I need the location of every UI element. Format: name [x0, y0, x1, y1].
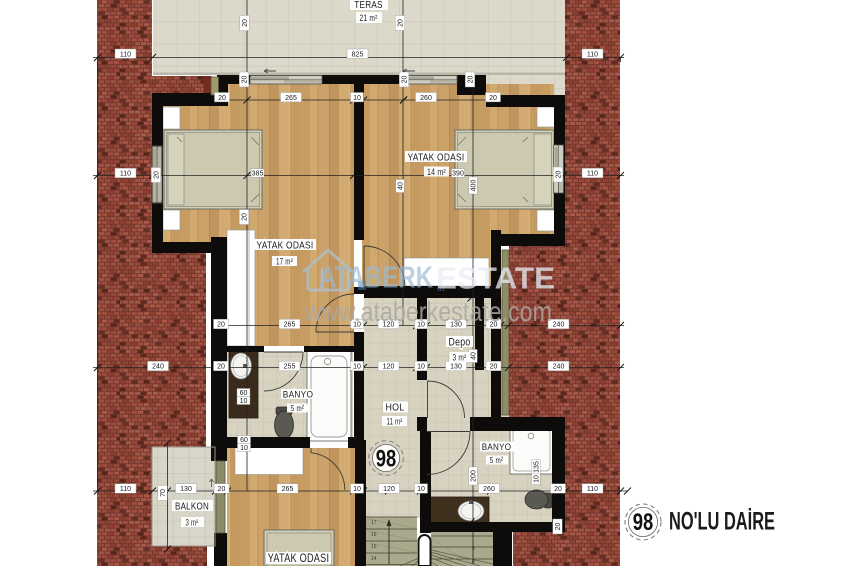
svg-text:YATAK ODASI: YATAK ODASI [408, 152, 465, 164]
svg-text:YATAK ODASI: YATAK ODASI [268, 551, 330, 565]
svg-text:20: 20 [555, 523, 562, 531]
svg-text:110: 110 [120, 171, 131, 178]
svg-text:110: 110 [587, 486, 598, 493]
svg-text:17: 17 [371, 520, 377, 526]
svg-text:265: 265 [282, 486, 294, 493]
svg-text:10: 10 [353, 486, 361, 493]
svg-text:TERAS: TERAS [354, 0, 383, 11]
svg-text:200: 200 [471, 470, 478, 482]
svg-text:400: 400 [471, 180, 478, 192]
svg-text:260: 260 [483, 486, 495, 493]
svg-text:240: 240 [553, 322, 565, 329]
svg-text:14 m²: 14 m² [427, 167, 446, 177]
svg-text:130: 130 [450, 364, 462, 371]
svg-text:98: 98 [633, 509, 654, 536]
svg-text:10: 10 [417, 364, 425, 371]
svg-text:16: 16 [371, 532, 377, 538]
svg-text:120: 120 [383, 486, 395, 493]
svg-text:255: 255 [284, 364, 296, 371]
svg-text:HOL: HOL [386, 402, 405, 414]
svg-text:3 m²: 3 m² [186, 518, 199, 528]
svg-text:120: 120 [383, 364, 395, 371]
svg-text:385: 385 [252, 170, 264, 177]
svg-text:5 m²: 5 m² [291, 403, 305, 413]
svg-text:5: 5 [472, 546, 475, 552]
svg-text:20: 20 [556, 171, 563, 179]
svg-text:5 m²: 5 m² [490, 455, 504, 465]
svg-text:240: 240 [152, 364, 164, 371]
svg-text:20: 20 [554, 486, 562, 493]
svg-text:60: 60 [240, 390, 248, 397]
svg-text:10: 10 [353, 364, 361, 371]
svg-text:110: 110 [120, 51, 131, 58]
svg-text:10: 10 [353, 95, 361, 102]
svg-text:20: 20 [402, 76, 409, 84]
svg-text:20: 20 [489, 95, 497, 102]
svg-text:60: 60 [240, 437, 248, 444]
svg-text:40: 40 [398, 182, 405, 190]
svg-text:14: 14 [371, 556, 377, 562]
svg-text:YATAK ODASI: YATAK ODASI [257, 240, 314, 252]
svg-text:20: 20 [468, 76, 475, 84]
svg-text:20: 20 [242, 76, 249, 84]
svg-text:BANYO: BANYO [283, 390, 314, 401]
svg-text:21 m²: 21 m² [360, 13, 378, 23]
svg-text:110: 110 [587, 51, 598, 58]
svg-text:20: 20 [217, 364, 225, 371]
svg-text:20: 20 [218, 95, 226, 102]
svg-text:11 m²: 11 m² [387, 417, 403, 427]
svg-text:70: 70 [160, 489, 167, 497]
svg-text:10: 10 [240, 398, 248, 405]
svg-text:825: 825 [352, 51, 364, 58]
svg-text:15: 15 [371, 544, 377, 550]
svg-text:20: 20 [218, 486, 226, 493]
svg-text:20: 20 [490, 364, 498, 371]
svg-text:265: 265 [284, 322, 296, 329]
svg-text:3 m²: 3 m² [453, 353, 467, 363]
svg-text:135: 135 [534, 461, 541, 473]
svg-text:10: 10 [534, 475, 541, 483]
svg-text:20: 20 [242, 19, 249, 27]
svg-text:BANYO: BANYO [482, 442, 512, 453]
svg-text:20: 20 [217, 322, 225, 329]
svg-text:10: 10 [240, 445, 248, 452]
svg-text:BALKON: BALKON [175, 502, 209, 513]
svg-text:20: 20 [242, 213, 249, 221]
svg-text:98: 98 [376, 446, 397, 473]
svg-text:265: 265 [285, 95, 297, 102]
svg-text:20: 20 [398, 19, 405, 27]
svg-text:240: 240 [553, 364, 565, 371]
svg-text:NO'LU DAİRE: NO'LU DAİRE [669, 508, 775, 536]
svg-text:ESTATE: ESTATE [436, 261, 555, 296]
svg-text:260: 260 [420, 95, 432, 102]
svg-text:110: 110 [587, 171, 598, 178]
svg-text:ATABERK: ATABERK [319, 260, 433, 295]
svg-text:20: 20 [154, 171, 161, 179]
svg-text:17 m²: 17 m² [276, 257, 293, 267]
svg-text:40: 40 [471, 352, 478, 360]
svg-text:10: 10 [417, 486, 425, 493]
svg-text:390: 390 [452, 170, 464, 177]
svg-text:130: 130 [180, 486, 192, 493]
svg-text:Depo: Depo [449, 337, 471, 349]
svg-text:110: 110 [120, 486, 131, 493]
svg-text:www.ataberkestate.com: www.ataberkestate.com [304, 296, 552, 327]
